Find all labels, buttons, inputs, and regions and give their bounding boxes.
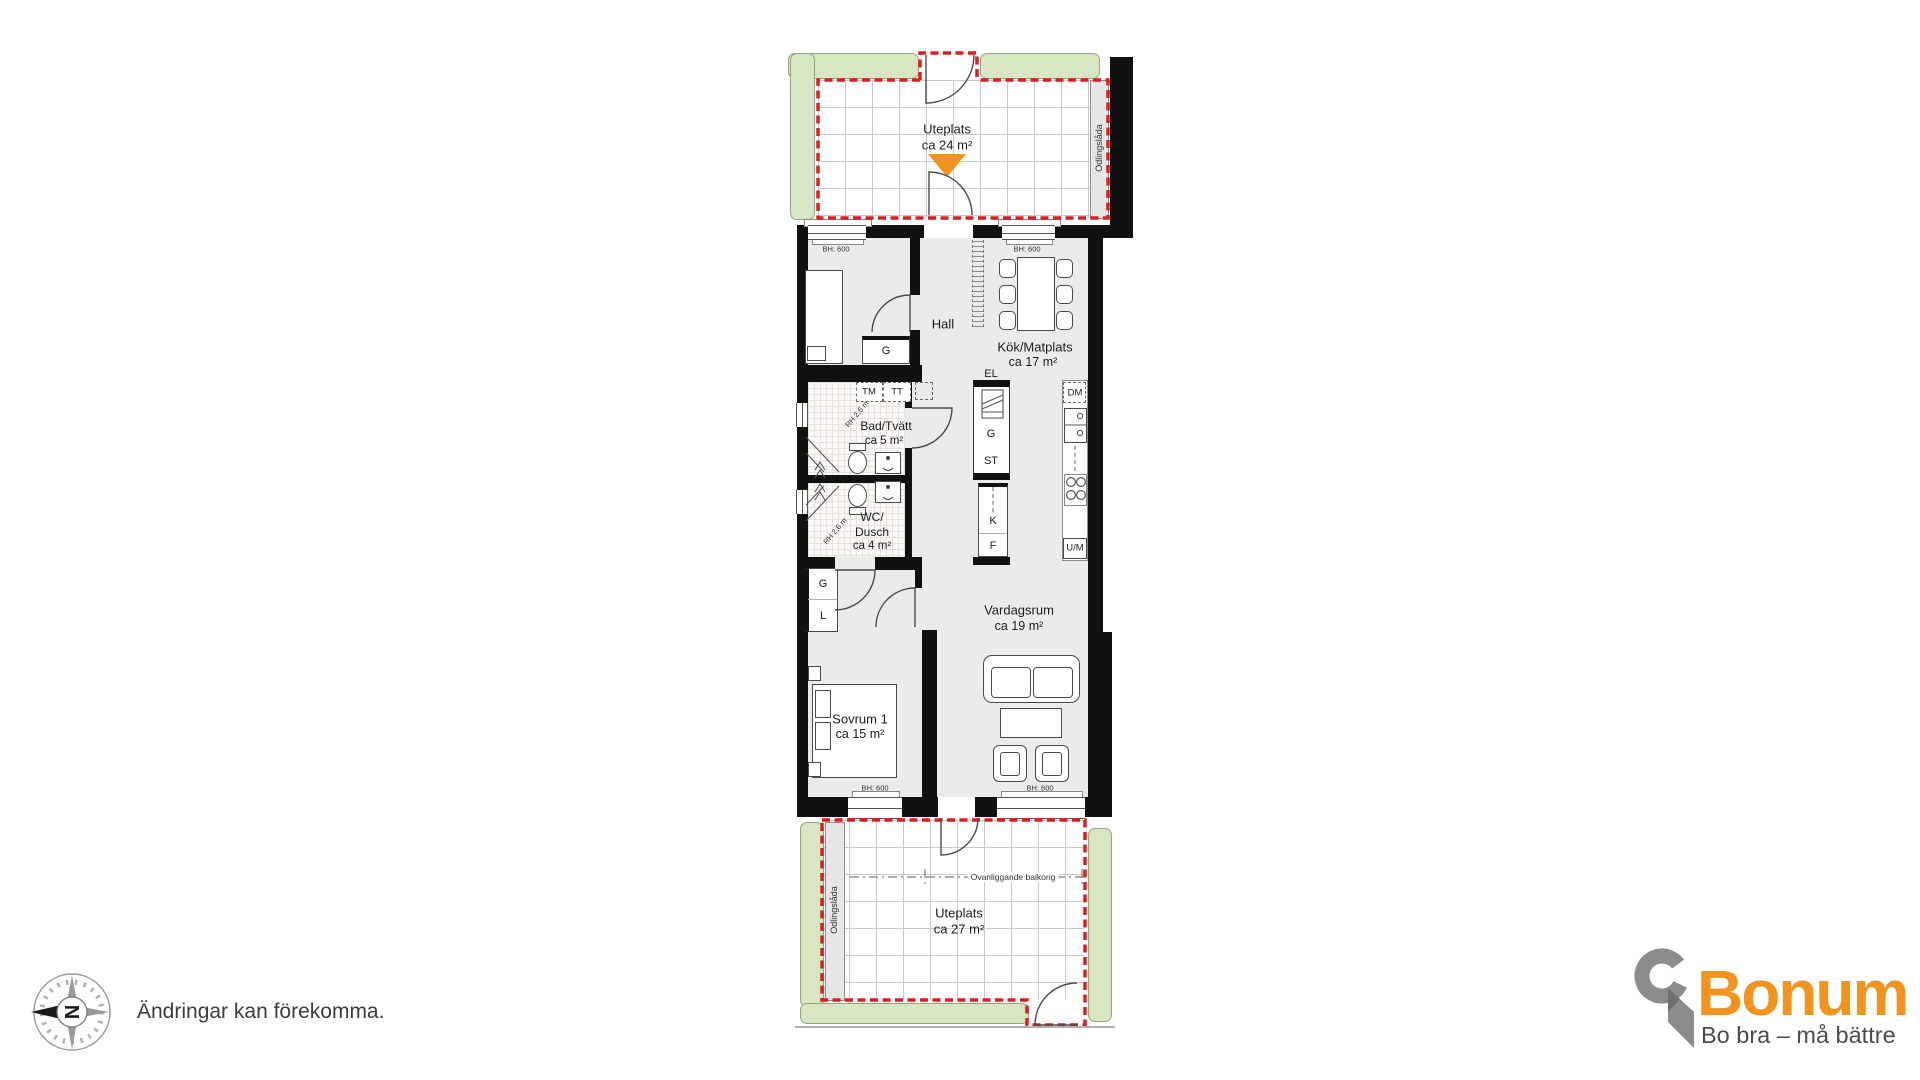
door-opening-wc <box>835 557 875 570</box>
wc-label-2: Dusch <box>855 525 889 539</box>
sofa-cushion <box>1033 667 1073 698</box>
vardagsrum-label: Vardagsrum <box>984 603 1054 618</box>
toilet-wc-bowl <box>848 484 867 507</box>
kok-label: Kök/Matplats <box>997 340 1072 355</box>
kitchen-sink <box>1064 408 1087 443</box>
wall-hall-stub <box>915 570 922 588</box>
wall-right-upper <box>1088 238 1103 632</box>
window-sovrum1 <box>848 797 902 819</box>
terrace-top-right-wall <box>1110 57 1133 238</box>
bonum-logo-mark <box>1635 949 1694 1048</box>
balcony-note: Ovanliggande balkong <box>968 872 1059 882</box>
vardagsrum-area: ca 19 m² <box>995 619 1044 633</box>
dryer-label: TT <box>891 387 903 398</box>
wall-right-lower <box>1088 632 1112 817</box>
sovrum1-label: Sovrum 1 <box>832 712 888 727</box>
window-vardagsrum <box>997 797 1085 819</box>
compass-north-letter: N <box>60 1005 82 1019</box>
bad-label: Bad/Tvätt <box>860 419 911 433</box>
window-sovrum2 <box>808 225 866 240</box>
wall-sovrum2-right-upper <box>910 238 920 295</box>
wall-wc-right <box>905 483 912 557</box>
bed-sovrum2-pillow <box>807 346 826 361</box>
hedge-bottom-left-column <box>800 822 824 1007</box>
fridge-label: K <box>989 515 996 527</box>
freezer-label: F <box>990 540 997 552</box>
window-height-label: BH: 600 <box>822 245 849 254</box>
hedge-bottom-row <box>800 1003 1029 1024</box>
washer-label: TM <box>862 387 876 398</box>
closet-sovrum2-label: G <box>882 345 891 357</box>
armchair-seat <box>1000 752 1020 776</box>
dishwasher-label: DM <box>1068 388 1083 399</box>
dining-chair <box>999 285 1016 304</box>
oven-micro-label: U/M <box>1066 543 1083 554</box>
cabinet-st-label: ST <box>984 455 998 467</box>
kok-area: ca 17 m² <box>1009 355 1058 369</box>
armchair-seat <box>1042 752 1062 776</box>
closet-hall-g-label: G <box>819 578 828 590</box>
window-wc-slit <box>796 490 808 514</box>
bed-sovrum1-pillow <box>815 690 831 718</box>
disclaimer-text: Ändringar kan förekomma. <box>137 1000 384 1024</box>
closet-hall-l-label: L <box>820 610 826 622</box>
brand-name: Bonum <box>1697 956 1907 1030</box>
nightstand <box>808 762 821 777</box>
dining-chair <box>999 259 1016 278</box>
window-kok <box>1002 225 1055 240</box>
hedge-top-left-column <box>790 53 815 220</box>
window-bad-slit <box>796 403 808 427</box>
sofa-cushion <box>991 667 1031 698</box>
compass-icon: N <box>31 974 110 1050</box>
terrace-top-area: ca 24 m² <box>922 138 973 153</box>
dining-chair <box>1056 259 1073 278</box>
planter-box-top-label: Odlingslåda <box>1094 124 1104 172</box>
dining-table <box>1017 257 1055 331</box>
toilet-bad-bowl <box>848 451 867 474</box>
window-height-label: BH: 600 <box>1026 784 1053 793</box>
basin-wc <box>875 481 901 503</box>
hall-shaft <box>972 240 984 327</box>
dining-chair <box>999 311 1016 330</box>
basin-bad <box>875 452 901 474</box>
fridge-freezer-divider <box>979 533 1007 534</box>
electrical-label: EL <box>984 368 997 380</box>
closet-hall-divider <box>808 599 837 600</box>
ground-line <box>795 1026 1115 1028</box>
terrace-bottom-label: Uteplats <box>935 906 983 921</box>
nightstand <box>808 666 821 681</box>
wall-sovrum2-bottom <box>797 365 922 382</box>
bed-sovrum1-pillow <box>815 722 831 750</box>
hedge-bottom-right-column <box>1088 828 1112 1022</box>
wc-area: ca 4 m² <box>853 540 891 552</box>
wc-label-1: WC/ <box>860 510 883 524</box>
coffee-table <box>1000 708 1062 738</box>
door-opening-terrace-bottom <box>938 797 975 817</box>
toilet-bad-tank <box>849 443 866 451</box>
hall-label: Hall <box>932 317 954 332</box>
window-height-label: BH: 600 <box>1013 245 1040 254</box>
terrace-bottom-area: ca 27 m² <box>934 922 985 937</box>
bad-area: ca 5 m² <box>865 435 903 447</box>
kitchen-stub-wall <box>973 557 1010 565</box>
planter-box-bottom-label: Odlingslåda <box>829 886 839 934</box>
window-height-label: BH: 600 <box>861 784 888 793</box>
wall-sovrum1-vardagsrum <box>922 630 937 797</box>
sovrum1-area: ca 15 m² <box>836 727 885 741</box>
brand-tagline: Bo bra – må bättre <box>1701 1022 1896 1049</box>
stove <box>1064 474 1087 506</box>
hedge-top-right <box>980 53 1100 79</box>
dining-chair <box>1056 285 1073 304</box>
terrace-top-label: Uteplats <box>923 122 971 137</box>
cabinet-g-label: G <box>987 428 996 440</box>
hall-appliance-slot <box>915 382 933 400</box>
wall-bad-right-lower <box>905 448 912 475</box>
dining-chair <box>1056 311 1073 330</box>
door-opening-terrace-top <box>924 225 973 238</box>
